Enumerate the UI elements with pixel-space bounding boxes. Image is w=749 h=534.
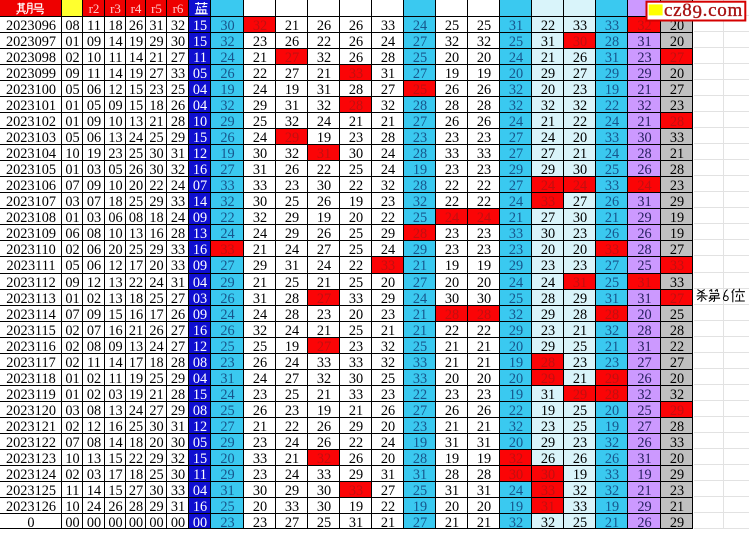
svg-text:23: 23 (445, 226, 459, 242)
svg-text:2023122: 2023122 (6, 435, 56, 451)
svg-text:26: 26 (317, 18, 331, 34)
svg-text:30: 30 (509, 467, 523, 483)
svg-text:13: 13 (108, 275, 122, 291)
svg-text:09: 09 (193, 210, 207, 226)
svg-text:05: 05 (193, 435, 207, 451)
svg-text:26: 26 (220, 130, 234, 146)
svg-text:33: 33 (541, 483, 555, 499)
svg-text:31: 31 (605, 291, 619, 307)
svg-text:02: 02 (65, 339, 79, 355)
svg-text:20: 20 (509, 339, 523, 355)
svg-text:33: 33 (605, 130, 619, 146)
svg-text:27: 27 (285, 50, 299, 66)
svg-text:33: 33 (171, 194, 185, 210)
svg-text:08: 08 (65, 18, 79, 34)
svg-text:29: 29 (573, 387, 587, 403)
svg-text:30: 30 (253, 483, 267, 499)
svg-text:21: 21 (285, 18, 299, 34)
svg-text:24: 24 (573, 178, 587, 194)
svg-text:28: 28 (171, 114, 185, 130)
svg-text:cz89.com: cz89.com (664, 0, 743, 23)
svg-text:06: 06 (87, 242, 101, 258)
svg-text:29: 29 (670, 403, 684, 419)
svg-text:18: 18 (108, 18, 122, 34)
svg-text:25: 25 (285, 275, 299, 291)
svg-text:25: 25 (285, 194, 299, 210)
svg-text:33: 33 (253, 451, 267, 467)
svg-text:r2: r2 (89, 1, 100, 16)
svg-text:22: 22 (381, 499, 395, 515)
svg-text:22: 22 (349, 258, 363, 274)
svg-text:28: 28 (413, 226, 427, 242)
svg-text:23: 23 (670, 98, 684, 114)
svg-text:29: 29 (285, 226, 299, 242)
svg-text:31: 31 (637, 291, 651, 307)
svg-text:21: 21 (285, 451, 299, 467)
svg-text:22: 22 (445, 194, 459, 210)
svg-text:16: 16 (193, 242, 207, 258)
svg-text:29: 29 (349, 467, 363, 483)
svg-text:2023097: 2023097 (6, 34, 56, 50)
svg-text:23: 23 (413, 130, 427, 146)
svg-text:20: 20 (445, 275, 459, 291)
svg-text:33: 33 (171, 66, 185, 82)
svg-text:26: 26 (637, 435, 651, 451)
svg-text:01: 01 (65, 291, 79, 307)
svg-text:26: 26 (317, 194, 331, 210)
svg-text:28: 28 (171, 355, 185, 371)
svg-text:28: 28 (477, 467, 491, 483)
svg-text:27: 27 (413, 34, 427, 50)
svg-text:22: 22 (149, 178, 163, 194)
svg-text:2023108: 2023108 (6, 210, 56, 226)
svg-text:07: 07 (65, 178, 79, 194)
svg-text:28: 28 (605, 34, 619, 50)
svg-text:30: 30 (317, 178, 331, 194)
svg-text:15: 15 (193, 451, 207, 467)
svg-text:25: 25 (129, 419, 143, 435)
svg-text:23: 23 (670, 483, 684, 499)
svg-text:29: 29 (509, 258, 523, 274)
svg-text:30: 30 (445, 291, 459, 307)
svg-text:29: 29 (285, 483, 299, 499)
svg-text:16: 16 (193, 323, 207, 339)
svg-text:07: 07 (87, 323, 101, 339)
svg-text:30: 30 (573, 210, 587, 226)
svg-text:28: 28 (605, 307, 619, 323)
svg-text:33: 33 (220, 178, 234, 194)
svg-text:32: 32 (509, 515, 523, 529)
svg-text:31: 31 (637, 34, 651, 50)
svg-text:26: 26 (637, 371, 651, 387)
svg-text:33: 33 (509, 226, 523, 242)
svg-text:23: 23 (477, 162, 491, 178)
svg-text:20: 20 (253, 499, 267, 515)
svg-text:01: 01 (65, 98, 79, 114)
svg-text:05: 05 (65, 130, 79, 146)
svg-text:19: 19 (445, 258, 459, 274)
svg-text:20: 20 (573, 130, 587, 146)
svg-text:25: 25 (317, 515, 331, 529)
svg-text:20: 20 (637, 307, 651, 323)
svg-text:28: 28 (670, 419, 684, 435)
svg-text:28: 28 (349, 98, 363, 114)
svg-text:22: 22 (381, 210, 395, 226)
svg-text:22: 22 (129, 275, 143, 291)
svg-text:20: 20 (108, 242, 122, 258)
svg-text:26: 26 (349, 18, 363, 34)
svg-text:29: 29 (220, 467, 234, 483)
svg-text:31: 31 (317, 146, 331, 162)
svg-text:06: 06 (108, 210, 122, 226)
svg-text:23: 23 (477, 130, 491, 146)
svg-text:14: 14 (108, 355, 122, 371)
svg-text:27: 27 (171, 50, 185, 66)
svg-text:02: 02 (65, 242, 79, 258)
svg-text:30: 30 (149, 483, 163, 499)
svg-text:24: 24 (220, 226, 234, 242)
svg-text:2023114: 2023114 (6, 307, 56, 323)
svg-text:25: 25 (149, 291, 163, 307)
svg-text:31: 31 (541, 387, 555, 403)
svg-text:20: 20 (573, 242, 587, 258)
svg-text:22: 22 (349, 435, 363, 451)
svg-text:33: 33 (477, 146, 491, 162)
svg-text:24: 24 (477, 210, 491, 226)
svg-text:21: 21 (349, 114, 363, 130)
svg-text:02: 02 (65, 419, 79, 435)
svg-text:21: 21 (317, 66, 331, 82)
svg-text:00: 00 (65, 515, 79, 529)
svg-text:27: 27 (220, 419, 234, 435)
svg-text:22: 22 (349, 178, 363, 194)
svg-text:19: 19 (605, 419, 619, 435)
svg-text:26: 26 (220, 323, 234, 339)
svg-text:08: 08 (129, 210, 143, 226)
svg-text:33: 33 (670, 435, 684, 451)
svg-text:19: 19 (317, 210, 331, 226)
svg-text:24: 24 (129, 403, 143, 419)
svg-text:25: 25 (445, 18, 459, 34)
svg-text:29: 29 (637, 499, 651, 515)
svg-text:27: 27 (317, 339, 331, 355)
svg-text:24: 24 (509, 194, 523, 210)
svg-text:21: 21 (477, 355, 491, 371)
svg-text:23: 23 (381, 307, 395, 323)
svg-text:2023106: 2023106 (6, 178, 56, 194)
svg-text:27: 27 (413, 66, 427, 82)
svg-text:32: 32 (509, 307, 523, 323)
svg-text:09: 09 (87, 178, 101, 194)
svg-text:22: 22 (605, 98, 619, 114)
svg-text:25: 25 (349, 275, 363, 291)
svg-text:03: 03 (193, 291, 207, 307)
svg-text:2023111: 2023111 (7, 258, 56, 274)
svg-text:11: 11 (87, 66, 101, 82)
svg-text:30: 30 (317, 483, 331, 499)
svg-text:26: 26 (477, 403, 491, 419)
svg-text:23: 23 (285, 403, 299, 419)
svg-text:27: 27 (637, 355, 651, 371)
svg-text:24: 24 (129, 130, 143, 146)
svg-text:21: 21 (509, 210, 523, 226)
svg-text:19: 19 (477, 66, 491, 82)
svg-text:24: 24 (381, 242, 395, 258)
svg-text:32: 32 (171, 451, 185, 467)
svg-text:23: 23 (285, 178, 299, 194)
svg-text:31: 31 (637, 339, 651, 355)
svg-text:25: 25 (349, 323, 363, 339)
svg-text:27: 27 (171, 339, 185, 355)
svg-text:27: 27 (171, 291, 185, 307)
svg-text:23: 23 (477, 226, 491, 242)
svg-text:20: 20 (445, 499, 459, 515)
svg-text:33: 33 (605, 242, 619, 258)
svg-text:02: 02 (65, 355, 79, 371)
svg-text:00: 00 (129, 515, 143, 529)
svg-text:32: 32 (253, 323, 267, 339)
svg-text:20: 20 (670, 34, 684, 50)
svg-text:15: 15 (129, 82, 143, 98)
svg-text:31: 31 (445, 483, 459, 499)
svg-text:25: 25 (253, 114, 267, 130)
svg-text:24: 24 (171, 178, 185, 194)
svg-text:22: 22 (445, 323, 459, 339)
svg-text:33: 33 (381, 18, 395, 34)
svg-text:32: 32 (220, 98, 234, 114)
svg-text:29: 29 (541, 371, 555, 387)
svg-text:22: 22 (253, 66, 267, 82)
svg-text:22: 22 (413, 387, 427, 403)
svg-text:21: 21 (541, 114, 555, 130)
svg-text:23: 23 (149, 82, 163, 98)
svg-text:25: 25 (605, 275, 619, 291)
svg-text:28: 28 (637, 323, 651, 339)
svg-text:2023101: 2023101 (6, 98, 56, 114)
svg-text:07: 07 (65, 307, 79, 323)
svg-text:28: 28 (285, 291, 299, 307)
svg-text:33: 33 (220, 242, 234, 258)
svg-text:19: 19 (670, 226, 684, 242)
svg-text:13: 13 (193, 226, 207, 242)
svg-text:15: 15 (108, 307, 122, 323)
svg-text:33: 33 (670, 130, 684, 146)
svg-text:24: 24 (509, 50, 523, 66)
svg-text:26: 26 (129, 162, 143, 178)
svg-text:21: 21 (381, 515, 395, 529)
svg-text:22: 22 (541, 18, 555, 34)
svg-text:2023118: 2023118 (6, 371, 56, 387)
svg-text:23: 23 (573, 435, 587, 451)
svg-text:21: 21 (445, 515, 459, 529)
svg-text:31: 31 (381, 66, 395, 82)
svg-text:28: 28 (445, 307, 459, 323)
svg-text:20: 20 (445, 50, 459, 66)
svg-text:21: 21 (573, 146, 587, 162)
svg-text:28: 28 (413, 178, 427, 194)
svg-text:25: 25 (413, 483, 427, 499)
svg-text:20: 20 (129, 178, 143, 194)
svg-text:15: 15 (108, 451, 122, 467)
svg-text:32: 32 (509, 419, 523, 435)
svg-text:2023105: 2023105 (6, 162, 56, 178)
svg-text:26: 26 (317, 435, 331, 451)
svg-text:28: 28 (541, 291, 555, 307)
svg-text:32: 32 (253, 18, 267, 34)
svg-text:27: 27 (149, 66, 163, 82)
svg-text:20: 20 (477, 275, 491, 291)
svg-text:19: 19 (129, 66, 143, 82)
svg-text:28: 28 (171, 387, 185, 403)
svg-text:31: 31 (605, 50, 619, 66)
svg-text:23: 23 (573, 355, 587, 371)
svg-text:29: 29 (171, 403, 185, 419)
svg-text:25: 25 (220, 499, 234, 515)
svg-text:20: 20 (349, 307, 363, 323)
svg-text:09: 09 (65, 66, 79, 82)
svg-text:24: 24 (87, 499, 101, 515)
svg-text:32: 32 (573, 98, 587, 114)
svg-text:27: 27 (413, 403, 427, 419)
svg-text:32: 32 (637, 98, 651, 114)
svg-text:25: 25 (573, 339, 587, 355)
svg-text:31: 31 (573, 275, 587, 291)
svg-text:10: 10 (108, 178, 122, 194)
svg-text:29: 29 (149, 451, 163, 467)
svg-text:31: 31 (541, 499, 555, 515)
svg-text:16: 16 (193, 499, 207, 515)
svg-text:29: 29 (220, 435, 234, 451)
svg-text:26: 26 (637, 515, 651, 529)
svg-text:21: 21 (670, 146, 684, 162)
svg-text:25: 25 (413, 339, 427, 355)
svg-text:24: 24 (413, 18, 427, 34)
svg-text:26: 26 (317, 419, 331, 435)
svg-text:27: 27 (285, 66, 299, 82)
svg-text:29: 29 (171, 371, 185, 387)
svg-text:26: 26 (349, 451, 363, 467)
svg-text:15: 15 (129, 98, 143, 114)
svg-text:19: 19 (637, 467, 651, 483)
svg-text:33: 33 (349, 387, 363, 403)
svg-text:32: 32 (477, 34, 491, 50)
svg-text:19: 19 (285, 82, 299, 98)
svg-text:14: 14 (108, 66, 122, 82)
svg-text:14: 14 (87, 483, 101, 499)
svg-text:32: 32 (317, 98, 331, 114)
svg-text:23: 23 (253, 515, 267, 529)
svg-text:10: 10 (65, 451, 79, 467)
svg-text:14: 14 (193, 194, 207, 210)
svg-text:23: 23 (605, 355, 619, 371)
svg-text:19: 19 (670, 210, 684, 226)
svg-text:2023116: 2023116 (6, 339, 56, 355)
svg-text:21: 21 (253, 50, 267, 66)
svg-text:06: 06 (65, 226, 79, 242)
svg-text:25: 25 (149, 130, 163, 146)
svg-text:29: 29 (541, 339, 555, 355)
svg-text:07: 07 (87, 194, 101, 210)
svg-text:33: 33 (413, 371, 427, 387)
svg-text:05: 05 (193, 66, 207, 82)
svg-text:03: 03 (87, 467, 101, 483)
svg-text:27: 27 (509, 178, 523, 194)
svg-text:33: 33 (317, 355, 331, 371)
svg-text:19: 19 (220, 146, 234, 162)
svg-text:28: 28 (541, 355, 555, 371)
svg-text:16: 16 (129, 307, 143, 323)
svg-text:29: 29 (541, 307, 555, 323)
svg-text:28: 28 (670, 323, 684, 339)
svg-text:18: 18 (129, 435, 143, 451)
svg-text:32: 32 (605, 323, 619, 339)
svg-text:23: 23 (477, 387, 491, 403)
svg-text:29: 29 (541, 435, 555, 451)
svg-text:25: 25 (477, 18, 491, 34)
svg-text:28: 28 (445, 98, 459, 114)
svg-text:28: 28 (477, 98, 491, 114)
svg-text:03: 03 (87, 210, 101, 226)
svg-text:19: 19 (349, 194, 363, 210)
svg-text:11: 11 (66, 483, 80, 499)
svg-text:28: 28 (381, 130, 395, 146)
svg-text:25: 25 (413, 82, 427, 98)
svg-text:33: 33 (171, 242, 185, 258)
svg-text:20: 20 (477, 371, 491, 387)
svg-text:32: 32 (381, 178, 395, 194)
svg-text:19: 19 (413, 435, 427, 451)
svg-text:32: 32 (509, 98, 523, 114)
svg-text:23: 23 (541, 323, 555, 339)
svg-text:19: 19 (605, 82, 619, 98)
svg-text:08: 08 (193, 355, 207, 371)
svg-text:19: 19 (541, 403, 555, 419)
svg-text:33: 33 (670, 275, 684, 291)
svg-text:31: 31 (253, 291, 267, 307)
svg-text:05: 05 (65, 82, 79, 98)
svg-text:19: 19 (220, 82, 234, 98)
svg-text:31: 31 (413, 467, 427, 483)
svg-text:32: 32 (573, 483, 587, 499)
svg-text:26: 26 (637, 162, 651, 178)
svg-text:25: 25 (637, 403, 651, 419)
svg-text:14: 14 (129, 50, 143, 66)
svg-text:28: 28 (637, 242, 651, 258)
svg-text:33: 33 (349, 483, 363, 499)
svg-text:19: 19 (317, 130, 331, 146)
svg-text:31: 31 (149, 18, 163, 34)
svg-text:20: 20 (149, 435, 163, 451)
svg-text:25: 25 (149, 467, 163, 483)
svg-text:27: 27 (285, 515, 299, 529)
svg-text:29: 29 (541, 162, 555, 178)
svg-text:24: 24 (509, 275, 523, 291)
svg-text:01: 01 (65, 387, 79, 403)
svg-text:25: 25 (381, 371, 395, 387)
svg-text:13: 13 (129, 226, 143, 242)
svg-text:20: 20 (349, 210, 363, 226)
svg-text:31: 31 (477, 483, 491, 499)
svg-text:30: 30 (541, 226, 555, 242)
svg-text:10: 10 (87, 50, 101, 66)
svg-text:21: 21 (317, 387, 331, 403)
svg-text:23: 23 (220, 355, 234, 371)
svg-text:24: 24 (285, 242, 299, 258)
svg-text:05: 05 (108, 162, 122, 178)
svg-text:30: 30 (171, 34, 185, 50)
svg-text:05: 05 (65, 258, 79, 274)
svg-text:32: 32 (253, 210, 267, 226)
